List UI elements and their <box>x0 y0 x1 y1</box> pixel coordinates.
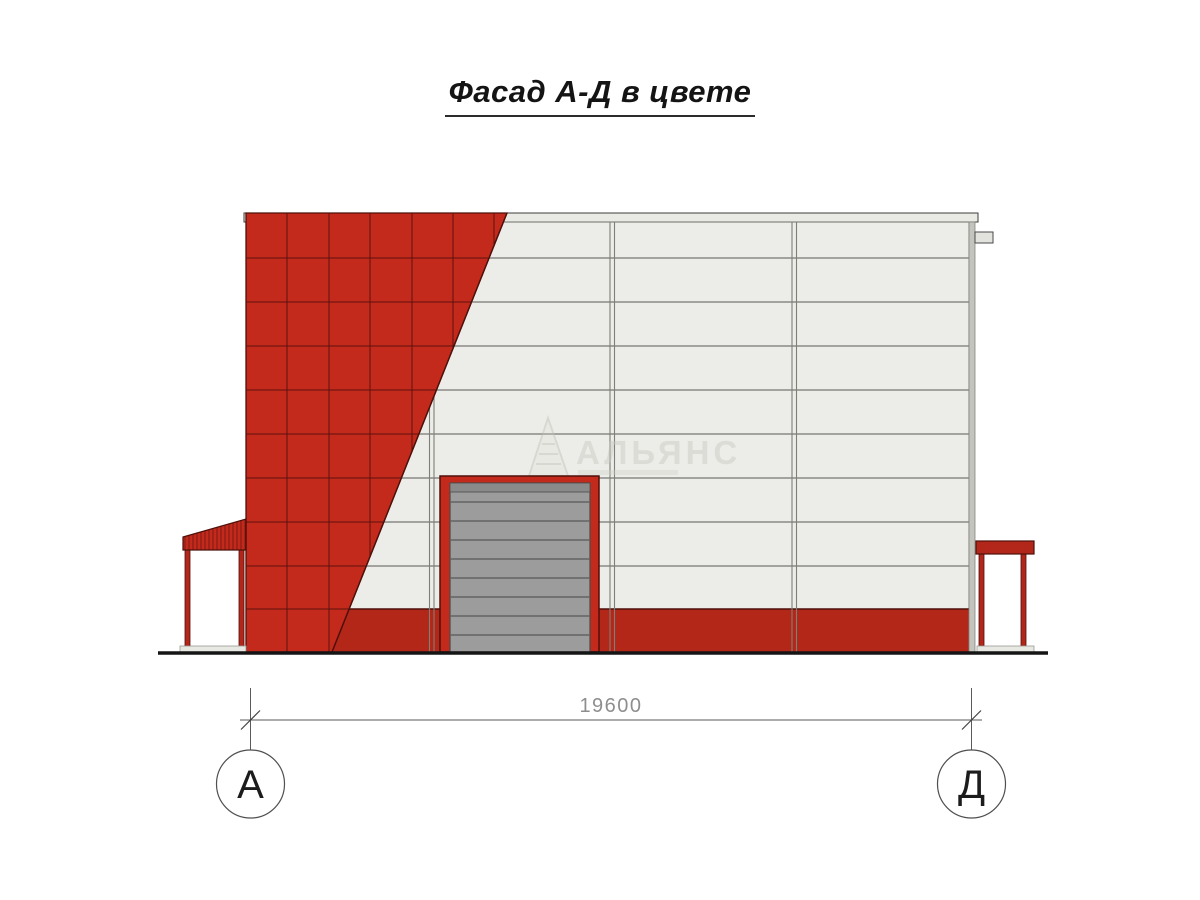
facade-drawing: АЛЬЯНС <box>0 0 1200 900</box>
right-canopy-roof <box>976 541 1034 554</box>
plinth-band <box>246 609 969 652</box>
left-canopy-post-outer <box>185 549 190 652</box>
axis-marker-d: Д <box>938 750 1006 818</box>
left-canopy-roof <box>183 519 246 550</box>
watermark-text: АЛЬЯНС <box>576 434 741 471</box>
axis-label-d: Д <box>958 763 985 807</box>
axis-label-a: А <box>237 763 264 807</box>
left-canopy <box>180 519 246 652</box>
right-canopy-slab <box>977 646 1034 652</box>
dimension-value: 19600 <box>579 695 642 717</box>
roof-scupper <box>975 232 993 243</box>
left-canopy-post-inner <box>239 533 244 652</box>
drawing-sheet: Фасад А-Д в цвете <box>0 0 1200 900</box>
right-canopy <box>976 541 1034 652</box>
watermark-subtitle-bar <box>578 470 678 475</box>
garage-door-leaf <box>450 483 590 652</box>
left-canopy-slab <box>180 646 246 652</box>
garage-door-top-bar <box>450 483 590 492</box>
building-elevation: АЛЬЯНС <box>244 213 993 652</box>
axis-marker-a: А <box>217 750 285 818</box>
right-canopy-post-inner <box>979 554 984 650</box>
garage-door <box>440 476 599 652</box>
right-canopy-post-outer <box>1021 554 1026 650</box>
corner-trim <box>969 222 975 652</box>
